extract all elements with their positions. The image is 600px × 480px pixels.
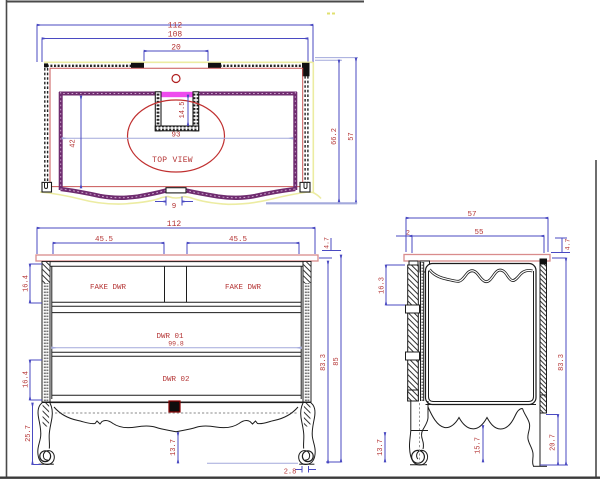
svg-text:20.7: 20.7 [550, 434, 558, 451]
svg-text:83.3: 83.3 [320, 354, 328, 371]
svg-text:13.7: 13.7 [170, 439, 178, 456]
svg-text:57: 57 [467, 211, 476, 219]
svg-text:85: 85 [333, 357, 341, 365]
svg-text:16.4: 16.4 [23, 275, 31, 292]
svg-text:55: 55 [474, 229, 484, 237]
svg-text:20: 20 [171, 44, 181, 53]
svg-text:13.7: 13.7 [377, 439, 385, 456]
svg-text:14.5: 14.5 [179, 102, 187, 119]
svg-text:16.3: 16.3 [379, 277, 387, 294]
svg-text:15.7: 15.7 [475, 437, 483, 454]
svg-text:45.5: 45.5 [95, 236, 114, 244]
svg-text:2.8: 2.8 [284, 469, 297, 477]
svg-text:112: 112 [167, 220, 182, 229]
svg-text:TOP VIEW: TOP VIEW [152, 156, 193, 165]
svg-text:4.7: 4.7 [324, 237, 331, 249]
svg-text:66.2: 66.2 [331, 128, 339, 145]
svg-text:FAKE DWR: FAKE DWR [90, 284, 127, 292]
svg-text:57: 57 [348, 132, 356, 140]
svg-text:42: 42 [70, 139, 78, 147]
svg-text:99.8: 99.8 [168, 341, 184, 348]
svg-text:DWR 02: DWR 02 [162, 376, 189, 384]
svg-text:112: 112 [168, 22, 183, 31]
svg-text:9: 9 [172, 203, 177, 211]
svg-text:FAKE DWR: FAKE DWR [225, 284, 262, 292]
svg-text:83.3: 83.3 [558, 354, 566, 371]
svg-text:2: 2 [406, 230, 410, 237]
svg-text:25.7: 25.7 [25, 425, 33, 442]
svg-text:45.5: 45.5 [229, 236, 248, 244]
svg-text:108: 108 [168, 31, 183, 40]
svg-text:16.4: 16.4 [23, 371, 31, 388]
svg-text:4.7: 4.7 [565, 239, 572, 251]
